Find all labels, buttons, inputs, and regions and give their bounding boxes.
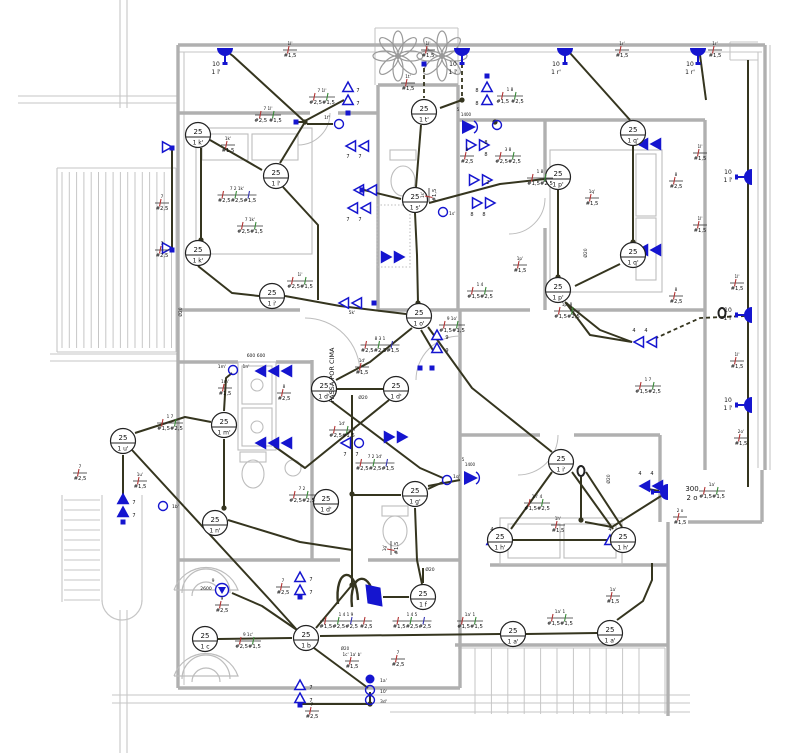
junction-box: 1 h' <box>494 545 506 552</box>
wire-gauge-label: 1p' <box>517 256 523 261</box>
annotation-text: 7 <box>356 88 359 94</box>
junction-box: 25 <box>322 495 331 503</box>
wire-gauge-label: #1,5 <box>694 228 707 234</box>
junction-box: 25 <box>554 283 563 291</box>
annotation-text: 7 <box>355 452 358 458</box>
wire-gauge-label: 1c' 1a' b' <box>343 652 362 657</box>
annotation-text: Ø20 <box>358 394 367 401</box>
annotation-text: 7 <box>358 217 361 223</box>
junction-box: 25 <box>629 126 638 134</box>
junction-box: 1 o' <box>413 321 424 328</box>
annotation-text: 7 <box>309 685 312 691</box>
wire-gauge-label: 1d'#1,5 <box>355 358 369 376</box>
architecture-arc <box>192 668 220 682</box>
annotation-text: 5 <box>462 457 465 462</box>
wire-gauge-label: 1s' <box>420 192 425 198</box>
wire-gauge-label: 1g'#1,5 <box>382 541 400 555</box>
wire-gauge-label: #1,5#1,5 <box>457 624 483 630</box>
switch-box-icon <box>274 369 279 374</box>
wire-node-dot <box>221 505 226 510</box>
outlet-triangle-icon <box>256 366 266 376</box>
junction-box: 1 t' <box>419 117 429 124</box>
conduit-wire <box>232 593 297 630</box>
wire-gauge-label: #2,5 <box>670 184 683 190</box>
wire-gauge-label: #1,5#2,5 <box>527 181 553 187</box>
wire-gauge-label: 1k'#1,5 <box>221 136 235 154</box>
wire-gauge-label: #1,5#2,5#2,5 #2,5 <box>319 624 372 630</box>
wire-gauge-label: 1g' <box>382 545 387 551</box>
wire-gauge-label: 1p' 8 <box>562 302 573 307</box>
junction-box: 251 b <box>294 626 319 651</box>
wire-gauge-label: 9 <box>221 596 224 601</box>
outlet-triangle-icon <box>348 203 358 213</box>
annotation-text: 1q' <box>453 474 460 480</box>
wire-gauge-label: #1,5 <box>222 148 235 154</box>
wire-gauge-label: 9 1o' <box>447 316 457 321</box>
conduit-wire <box>428 327 552 452</box>
wire-gauge-label: 2o'#1,5 <box>734 429 748 447</box>
wire-gauge-label: 7 2 <box>299 486 306 491</box>
plant-icon <box>439 53 445 59</box>
wire-gauge-label: 7 2 1d' <box>368 454 382 459</box>
wire-gauge-label: 8#2,5 <box>460 147 474 165</box>
annotation-text: 3d' <box>380 699 387 705</box>
junction-box: 25 <box>420 105 429 113</box>
switch-box-icon <box>346 111 351 116</box>
junction-box: 1 s' <box>410 205 421 212</box>
switch-box-icon <box>121 520 126 525</box>
switch-box-icon <box>422 62 427 67</box>
plant-icon <box>395 53 401 59</box>
junction-box: 1 c <box>200 644 209 651</box>
annotation-text: 10 <box>724 307 732 314</box>
wire-gauge-label: 8 3 1 <box>375 336 386 341</box>
wire-gauge-label: 1i' <box>298 272 303 277</box>
light-fixture-icon <box>651 490 654 495</box>
annotation-text: 1b' <box>172 504 179 510</box>
junction-box: 25 <box>201 632 210 640</box>
annotation-text: 8 <box>482 212 485 218</box>
annotation-text: 8 <box>475 88 478 94</box>
wire-gauge-label: #2,5 <box>392 662 405 668</box>
junction-box: 251 q' <box>621 243 646 268</box>
wire-gauge-label: 7 <box>397 650 400 655</box>
light-point-icon <box>366 675 375 684</box>
wire-gauge-label: 1d' <box>339 421 345 426</box>
junction-box: 25 <box>509 627 518 635</box>
light-point-icon <box>159 502 168 511</box>
junction-box: 25 <box>606 626 615 634</box>
wire-gauge-label: #1,5#2,5 <box>524 506 550 512</box>
light-fixture-icon <box>563 62 568 65</box>
outlet-triangle-icon <box>295 572 305 582</box>
conduit-wire <box>132 450 297 630</box>
outlet-triangle-icon <box>295 680 305 690</box>
conduit-wire <box>198 266 259 296</box>
wire-gauge-label: 1l' <box>698 216 703 221</box>
junction-box: 251 q' <box>621 121 646 146</box>
annotation-text: 7 <box>356 101 359 107</box>
wire-gauge-label: 7 2 1d'#2,5#2,5#1,5 <box>356 454 395 472</box>
light-fixture-icon <box>223 62 228 65</box>
fixture-rect <box>390 150 416 160</box>
annotation-text: 1400 <box>465 462 476 467</box>
wire-gauge-label: #1,5 <box>422 53 435 59</box>
wire-node-dot <box>578 517 583 522</box>
annotation-text: 1 l' <box>723 177 732 184</box>
wire-gauge-label: 1l' <box>288 41 293 46</box>
annotation-text: 7 <box>132 513 135 519</box>
switch-box-icon <box>372 301 377 306</box>
outlet-triangle-icon <box>382 252 392 262</box>
annotation-text: 1n' <box>243 364 250 370</box>
wire-gauge-label: #1,5 <box>514 268 527 274</box>
wire-node-dot <box>349 491 354 496</box>
outlet-triangle-icon <box>343 95 353 105</box>
annotation-text: 1 l' <box>723 315 732 322</box>
annotation-text: 2 <box>486 180 489 186</box>
wire-node-dot <box>349 582 354 587</box>
conduit-wire <box>511 472 552 529</box>
wire-gauge-label: #1,5#2,5#2,5 <box>393 624 432 630</box>
wire-gauge-label: #2,5 <box>156 206 169 212</box>
outlet-triangle-icon <box>470 175 480 185</box>
wire-gauge-label: #1,5#1,5 <box>547 621 573 627</box>
wire-gauge-label: #1,5 <box>134 484 147 490</box>
outlet-triangle-icon <box>341 438 351 448</box>
outlet-triangle-icon <box>482 95 492 105</box>
annotation-text: 7 <box>309 590 312 596</box>
outlet-triangle-icon <box>361 203 371 213</box>
annotation-text: 8 <box>475 101 478 107</box>
wire-gauge-label: #1,5 #2,5 <box>496 99 523 105</box>
light-point-icon <box>355 439 364 448</box>
junction-box: 1 p' <box>552 295 564 302</box>
outlet-triangle-icon <box>398 432 408 442</box>
wire-gauge-label: 1u' <box>137 472 143 477</box>
junction-box: 1 k' <box>193 258 204 265</box>
wire-gauge-label: 1l' <box>698 144 703 149</box>
junction-box: 1 a' <box>507 639 518 646</box>
annotation-text: 1 l' <box>211 69 220 76</box>
wire-gauge-label: #1,5#2,5 <box>635 389 661 395</box>
wire-gauge-label: #2,5 <box>278 396 291 402</box>
wire-node-dot <box>459 97 464 102</box>
fan-cone-icon <box>464 471 478 485</box>
annotation-text: 5k' <box>349 310 356 316</box>
light-point-icon <box>229 366 238 375</box>
junction-box: 251 t' <box>412 100 437 125</box>
junction-box: 25 <box>419 590 428 598</box>
conduit-wire <box>210 140 262 170</box>
wire-gauge-label: #1,5 <box>607 599 620 605</box>
junction-box: 1 u' <box>117 446 129 453</box>
junction-box: 251 k' <box>186 123 211 148</box>
junction-box: 25 <box>557 455 566 463</box>
wire-gauge-label: 1u'#1,5 <box>133 472 147 490</box>
junction-box: 251 l' <box>264 164 289 189</box>
wire-gauge-label: #2,5#1,5 <box>329 433 355 439</box>
wire-gauge-label: 1 4 5#1,5#2,5#2,5 <box>393 612 432 630</box>
wire-gauge-label: 7 2 1k'#2,5#2,5#1,5 <box>218 186 257 204</box>
wire-gauge-label: 1a' <box>610 587 616 592</box>
light-fixture-icon <box>460 62 465 65</box>
wire-gauge-label: 3 8 <box>505 147 512 152</box>
wire-gauge-label: 7 1l'#2,5 #1,5 <box>254 106 281 124</box>
junction-box: 251 n' <box>203 511 228 536</box>
junction-box: 25 <box>272 169 281 177</box>
conduit-wire <box>218 638 292 639</box>
fixture-rect <box>382 506 408 516</box>
wire-gauge-label: 1a' 1 <box>465 612 476 617</box>
fan-cone-icon <box>462 120 476 134</box>
annotation-text: 4 <box>490 527 493 533</box>
annotation-text: 10 <box>686 61 694 68</box>
junction-box: 25 <box>554 170 563 178</box>
conduit-riser-icon <box>578 466 585 476</box>
wire-gauge-label: 1 4 <box>477 282 484 287</box>
junction-box: 1 b <box>301 643 311 650</box>
wire-gauge-label: #1,5#2,5 <box>157 426 183 432</box>
wire-gauge-label: 1a' 1 <box>555 609 566 614</box>
wire-gauge-label: #1,5#2,5 <box>467 294 493 300</box>
fixture-ellipse <box>242 460 264 488</box>
outlet-triangle-icon <box>282 438 292 448</box>
architecture-arc <box>509 198 545 234</box>
wire-gauge-label: 7 1k' <box>245 217 255 222</box>
annotation-text: Ø20 <box>582 248 589 257</box>
wire-gauge-label: 1l' <box>735 274 740 279</box>
annotation-text: 1 r' <box>685 69 695 76</box>
wire-gauge-label: #1,5 <box>356 370 369 376</box>
wire-gauge-label: 1l' <box>735 352 740 357</box>
outlet-triangle-icon <box>295 585 305 595</box>
wire-gauge-label: 7 2 1k' <box>230 186 244 191</box>
wire-gauge-label: 8#2,5 <box>669 287 683 305</box>
junction-box: 1 i' <box>556 467 565 474</box>
junction-box: 251 d' <box>314 490 339 515</box>
wire-gauge-label: 7#2,5 <box>276 578 290 596</box>
junction-box: 251 u' <box>111 429 136 454</box>
fixture-rect <box>252 134 298 160</box>
annotation-text: 8 <box>484 140 487 146</box>
conduit-wire <box>415 213 418 303</box>
wire-gauge-label: 9 1c'#2,5#1,5 <box>235 632 261 650</box>
wire-gauge-label: 1d' <box>359 358 365 363</box>
junction-box: 1 l' <box>271 181 280 188</box>
wire-gauge-label: #2,5 <box>277 590 290 596</box>
outlet-triangle-icon <box>359 141 369 151</box>
annotation-text: 4 <box>644 328 647 334</box>
wire-gauge-label: 1 8#1,5 #2,5 <box>496 87 523 105</box>
junction-box: 1 h' <box>617 545 629 552</box>
wire-gauge-label: #1,5#1,5 <box>699 494 725 500</box>
wire-gauge-label: 1 4 5 <box>407 612 418 617</box>
architecture-arc <box>416 336 460 380</box>
outlet-triangle-icon <box>367 185 377 195</box>
wire-gauge-label: 2o' <box>738 429 744 434</box>
annotation-text: 10 <box>552 61 560 68</box>
annotation-text: 4 <box>638 471 641 477</box>
wire-gauge-label: 8#2,5 <box>669 172 683 190</box>
junction-box: 251 k' <box>186 241 211 266</box>
fixture-rect <box>242 408 272 446</box>
outlet-triangle-icon <box>118 507 128 517</box>
wire-gauge-label: #1,5 <box>219 391 232 397</box>
annotation-text: 7 <box>358 154 361 160</box>
wire-gauge-label: 1 7 <box>645 377 652 382</box>
annotation-text: 8 <box>484 152 487 158</box>
junction-box: 25 <box>220 418 229 426</box>
wire-gauge-label: 9 1c' <box>243 632 253 637</box>
fixture-ellipse <box>383 516 407 546</box>
wire-gauge-label: #2,5#2,5#1,5 <box>356 466 395 472</box>
wire-gauge-label: 8 <box>675 287 678 292</box>
wire-gauge-label: 7 <box>79 464 82 469</box>
junction-box: 1 d' <box>390 394 402 401</box>
wire-gauge-label: 8 <box>675 172 678 177</box>
wire-gauge-label: #2,5 <box>216 608 229 614</box>
annotation-text: 1s' <box>449 211 455 217</box>
wire-gauge-label: 1p'#1,5 <box>513 256 527 274</box>
wire-gauge-label: 1 7 <box>167 414 174 419</box>
junction-box: 1 a' <box>604 638 615 645</box>
wire-gauge-label: #2,5#1,5 <box>235 644 261 650</box>
light-fixture-icon <box>735 175 738 180</box>
outlet-triangle-icon <box>486 198 496 208</box>
annotation-text: 8 <box>470 212 473 218</box>
switch-box-icon <box>298 703 303 708</box>
wire-gauge-label: #2,5#1,5 <box>309 100 335 106</box>
outlet-triangle-icon <box>482 82 492 92</box>
fixture-rect <box>636 154 656 216</box>
junction-box: 251 f <box>411 585 436 610</box>
wire-gauge-label: 1 4 1 9 <box>339 612 354 617</box>
annotation-text: 10 <box>449 61 457 68</box>
annotation-text: 7 <box>309 698 312 704</box>
wire-gauge-label: 1l' <box>426 41 431 46</box>
junction-box: 25 <box>415 309 424 317</box>
wire-gauge-label: 1 4#1,5#2,5 <box>467 282 493 300</box>
wire-gauge-label: 7 1l' <box>318 88 327 93</box>
wire-gauge-label: 1k' <box>225 136 231 141</box>
wire-gauge-label: 7 1l' <box>264 106 273 111</box>
wire-gauge-label: 1h' <box>555 516 561 521</box>
light-fixture-icon <box>735 307 752 323</box>
annotation-text: 9 <box>445 335 448 341</box>
floor-plan-canvas: 251 k'251 l'251 k'251 i'251 t'251 s'251 … <box>0 0 800 753</box>
annotation-text: 2600 <box>200 586 212 592</box>
junction-box: 25 <box>629 248 638 256</box>
annotation-text: 10 <box>212 61 220 68</box>
junction-box: 1 d' <box>320 507 332 514</box>
outlet-triangle-icon <box>634 337 644 347</box>
outlet-triangle-icon <box>395 252 405 262</box>
junction-box: 1 p' <box>552 182 564 189</box>
fixture-ellipse <box>251 379 263 391</box>
wire-gauge-label: #2,5 <box>461 159 474 165</box>
wire-gauge-label: 1c' 1a' b'#1,5 <box>343 652 362 670</box>
annotation-text: 1m' <box>218 364 226 370</box>
junction-box: 251 i' <box>260 284 285 309</box>
annotation-text: 1a' <box>380 678 387 684</box>
junction-box: 1 k' <box>193 140 204 147</box>
conduit-wire <box>316 585 352 628</box>
wire-gauge-label: 8 <box>466 147 469 152</box>
wire-gauge-label: 1 8 <box>507 87 514 92</box>
wire-gauge-label: #1,5 <box>694 156 707 162</box>
architecture-arc <box>102 600 142 620</box>
switch-box-icon <box>485 74 490 79</box>
annotation-text: 9 <box>445 348 448 354</box>
annotation-text: Ø20 <box>177 307 184 316</box>
annotation-text: Ø20 <box>605 474 612 483</box>
switch-box-icon <box>170 248 175 253</box>
wire-gauge-label: 1h' 4 <box>532 494 543 499</box>
outlet-triangle-icon <box>385 432 395 442</box>
wire-gauge-label: #1,5#1,5 <box>439 328 465 334</box>
wire-gauge-label: 1 7#1,5#2,5 <box>635 377 661 395</box>
fixture-rect <box>196 128 312 254</box>
junction-box: 1 f <box>419 602 428 609</box>
light-point-icon <box>335 120 344 129</box>
junction-box: 251 m' <box>212 413 237 438</box>
wire-gauge-label: #1,5 <box>709 53 722 59</box>
conduit-wire <box>225 50 305 122</box>
wire-gauge-label: 7#2,5 <box>391 650 405 668</box>
junction-box: 251 h' <box>611 528 636 553</box>
wire-gauge-label: #2,5 #1,5 <box>254 118 281 124</box>
junction-box: 25 <box>302 631 311 639</box>
wire-gauge-label: #1,5 <box>586 201 599 207</box>
conduit-wire <box>575 264 620 286</box>
junction-box: 1 n' <box>209 528 221 535</box>
wire-gauge-label: 1i'#2,5#1,5 <box>287 272 313 290</box>
annotation-text: 600 600 <box>247 353 266 359</box>
wire-gauge-label: 8#2,5 <box>277 384 291 402</box>
outlet-triangle-icon <box>473 198 483 208</box>
conduit-wire <box>617 563 652 620</box>
junction-box: 251 i' <box>549 450 574 475</box>
annotation-text: 10 <box>724 169 732 176</box>
fixture-rect <box>238 362 276 450</box>
conduit-wire <box>526 633 597 634</box>
junction-box: 251 g' <box>403 482 428 507</box>
outlet-triangle-icon <box>343 82 353 92</box>
wire-gauge-label: #2,5#2,5 <box>495 159 521 165</box>
wire-gauge-label: #2,5#2,5 <box>289 498 315 504</box>
wire-gauge-label: #1,5 <box>731 364 744 370</box>
annotation-text: 4 <box>608 527 611 533</box>
wire-gauge-label: #2,5#1,5 <box>287 284 313 290</box>
junction-box: 251 c <box>193 627 218 652</box>
wire-gauge-label: 7 <box>161 194 164 199</box>
junction-box: 1 i' <box>267 301 276 308</box>
annotation-text: 10 <box>724 397 732 404</box>
wire-gauge-label: #2,5#2,5#1,5 <box>218 198 257 204</box>
junction-box: 25 <box>411 487 420 495</box>
annotation-text: 7 <box>343 452 346 458</box>
annotation-text: 1400 <box>461 112 472 117</box>
wire-node-dot <box>302 119 307 124</box>
switch-box-icon <box>170 146 175 151</box>
light-point-icon <box>439 208 448 217</box>
annotation-text: 1f' <box>324 115 330 121</box>
wire-gauge-label: #1,5 <box>402 86 415 92</box>
wire-gauge-label: #1,5 <box>432 189 438 202</box>
switch-box-icon <box>418 366 423 371</box>
wire-gauge-label: 1m'#1,5 <box>218 379 232 397</box>
